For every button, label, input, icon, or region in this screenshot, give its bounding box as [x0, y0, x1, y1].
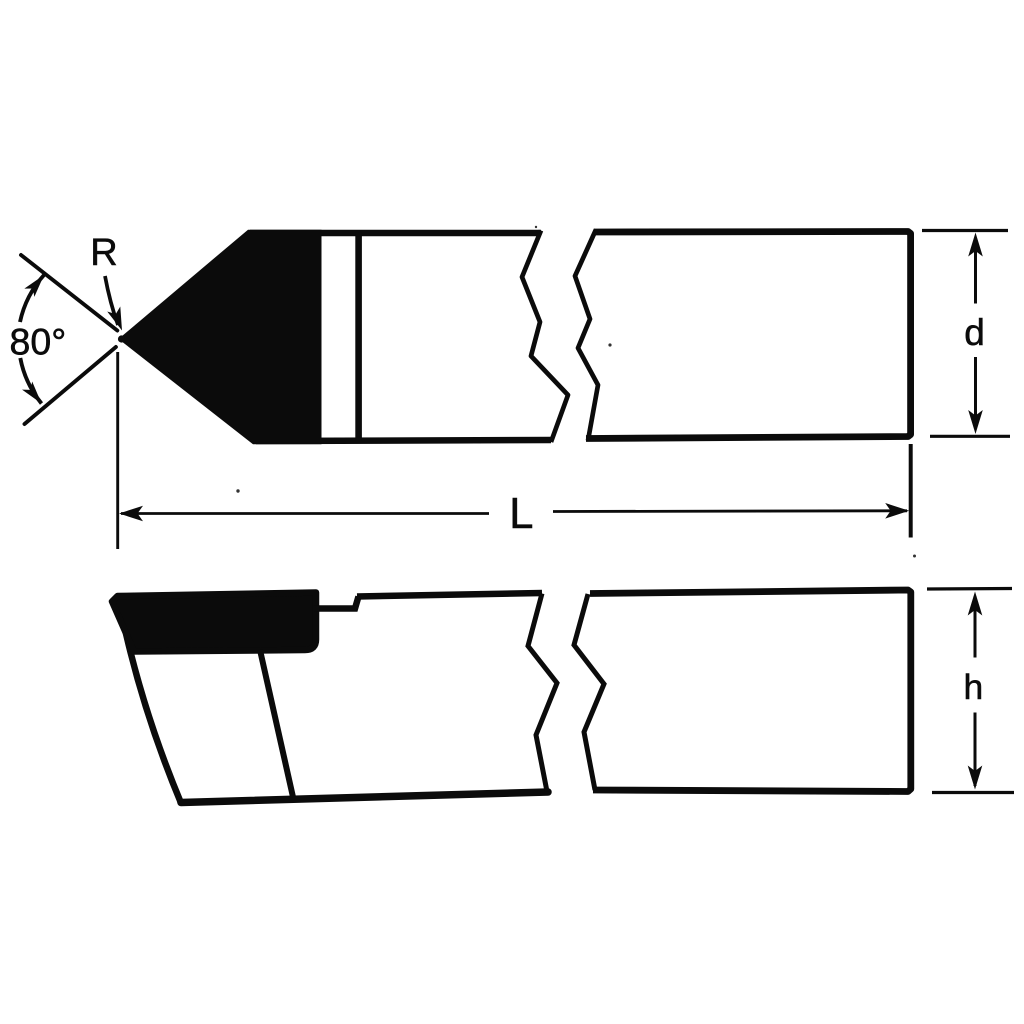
- svg-text:d: d: [964, 312, 985, 353]
- svg-text:L: L: [509, 490, 533, 538]
- svg-text:80°: 80°: [10, 321, 67, 363]
- svg-text:R: R: [90, 232, 117, 274]
- svg-text:h: h: [964, 667, 984, 707]
